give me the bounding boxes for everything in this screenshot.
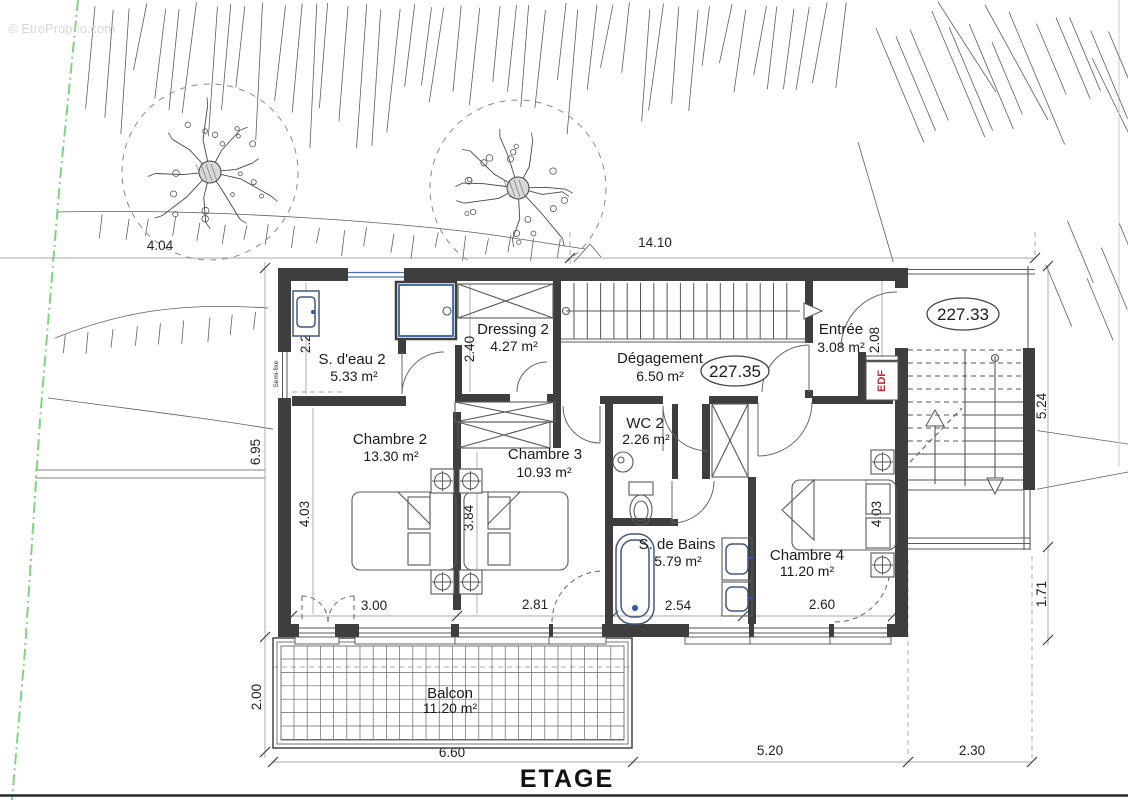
dimension-label: 5.24 (1034, 392, 1049, 419)
room-area: 5.79 m² (654, 553, 702, 569)
room-area: 11.20 m² (423, 700, 478, 716)
room-area: 11.20 m² (780, 563, 835, 579)
room-name: Entrée (819, 321, 863, 338)
sink-icon (293, 291, 319, 336)
windows (298, 624, 888, 637)
page-title: ETAGE (520, 765, 614, 793)
svg-text:227.33: 227.33 (937, 305, 989, 324)
room-name: Dressing 2 (477, 321, 549, 338)
dimension-label: 3.00 (361, 598, 387, 613)
top-wall-window (348, 268, 404, 281)
room-area: 2.26 m² (622, 431, 670, 447)
dimension-label: 2.60 (809, 597, 835, 612)
dimension-label: 4.03 (297, 501, 312, 527)
room-name: S. d'eau 2 (318, 351, 385, 368)
dimension-label: 14.10 (638, 235, 672, 250)
room-area: 3.08 m² (817, 339, 865, 355)
dimension-label: 1.71 (1034, 581, 1049, 607)
dimension-label: 2.08 (867, 327, 882, 353)
level-marker: 227.33 (927, 298, 999, 330)
room-name: S. de Bains (639, 536, 716, 553)
room-area: 13.30 m² (363, 448, 419, 464)
svg-text:227.35: 227.35 (709, 362, 761, 381)
dimension-label: 4.04 (147, 238, 174, 253)
room-area: 5.33 m² (330, 368, 378, 384)
level-marker: 227.35 (701, 356, 769, 386)
floor-plan-page: 4.04 14.10 6.95 2.00 5.24 1.71 6.60 5.20… (0, 0, 1128, 800)
dimension-label: 2.40 (462, 336, 477, 362)
room-area: 10.93 m² (516, 464, 572, 480)
room-area: 4.27 m² (490, 338, 538, 354)
room-name: Chambre 2 (353, 431, 427, 448)
window-sills (295, 637, 891, 644)
dimension-label: 2.81 (522, 597, 548, 612)
room-name: Dégagement (617, 350, 704, 367)
semi-fixe-label: Semi-fixe (273, 360, 280, 387)
edf-closet: EDF (866, 356, 898, 400)
dimension-label: 5.20 (757, 743, 783, 758)
dimension-label: 3.84 (461, 504, 476, 531)
dimension-label: 2.00 (249, 684, 264, 710)
watermark: © EtreProprio.com (8, 21, 115, 36)
edf-label: EDF (876, 370, 888, 392)
dimension-label: 2.30 (959, 743, 985, 758)
floor-plan-canvas: 4.04 14.10 6.95 2.00 5.24 1.71 6.60 5.20… (0, 0, 1128, 800)
entree-door-opening (895, 288, 908, 348)
dimension-label: 2.54 (665, 598, 692, 613)
shower-icon (396, 282, 456, 339)
room-name: Chambre 3 (508, 446, 582, 463)
room-name: Chambre 4 (770, 547, 844, 564)
room-area: 6.50 m² (636, 368, 684, 384)
dimension-label: 6.95 (248, 439, 263, 465)
room-name: WC 2 (626, 415, 664, 432)
